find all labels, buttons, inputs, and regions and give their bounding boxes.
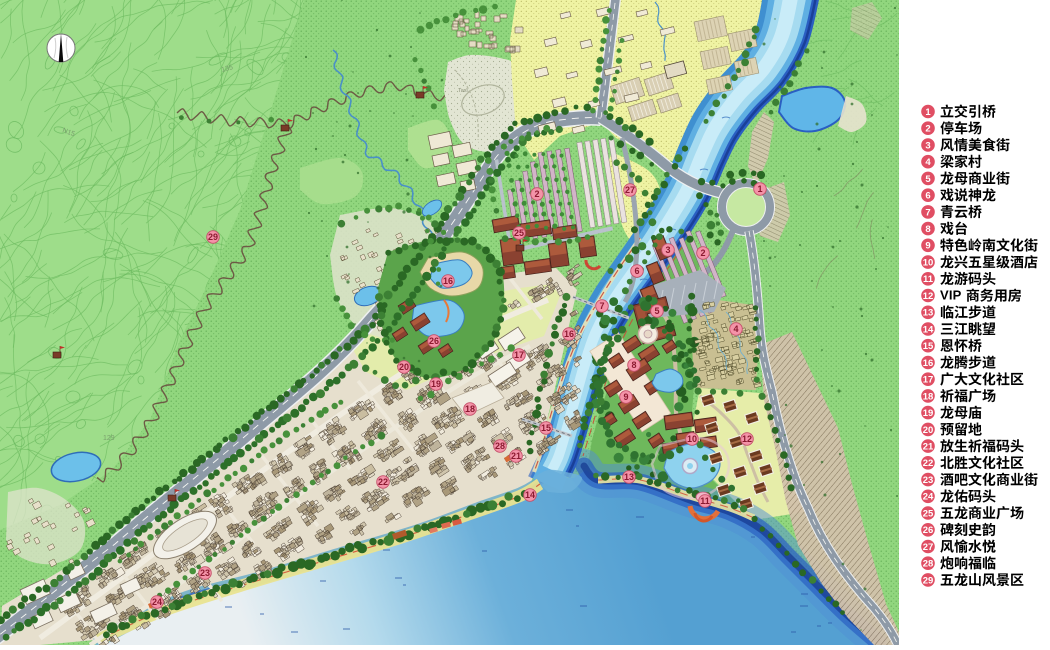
svg-text:28: 28 (923, 559, 934, 570)
svg-text:28: 28 (495, 441, 505, 451)
svg-text:23: 23 (923, 475, 934, 486)
svg-text:20: 20 (923, 425, 934, 436)
svg-text:2: 2 (534, 189, 539, 199)
svg-text:25: 25 (923, 508, 934, 519)
svg-text:18: 18 (923, 391, 934, 402)
svg-text:4: 4 (733, 324, 738, 334)
svg-text:15: 15 (541, 423, 551, 433)
svg-text:18: 18 (465, 404, 475, 414)
svg-text:6: 6 (634, 266, 639, 276)
svg-text:16: 16 (443, 276, 453, 286)
svg-text:9: 9 (623, 392, 628, 402)
svg-text:21: 21 (511, 451, 521, 461)
svg-text:VIP: VIP (940, 288, 962, 303)
svg-text:5: 5 (654, 306, 659, 316)
svg-text:6: 6 (925, 191, 930, 202)
svg-text:20: 20 (399, 362, 409, 372)
svg-text:129: 129 (103, 435, 115, 442)
svg-text:11: 11 (700, 496, 710, 506)
svg-text:29: 29 (208, 232, 218, 242)
svg-text:11: 11 (923, 274, 934, 285)
svg-text:7: 7 (925, 207, 930, 218)
svg-text:10: 10 (687, 434, 697, 444)
svg-text:16: 16 (564, 329, 574, 339)
svg-text:26: 26 (923, 525, 934, 536)
svg-text:17: 17 (923, 375, 934, 386)
svg-text:8: 8 (631, 360, 636, 370)
svg-text:3: 3 (925, 140, 930, 151)
svg-text:2: 2 (925, 124, 930, 135)
svg-text:16: 16 (923, 358, 934, 369)
svg-text:14: 14 (525, 490, 535, 500)
svg-text:5: 5 (925, 174, 931, 185)
svg-text:12: 12 (923, 291, 934, 302)
svg-text:10: 10 (923, 258, 934, 269)
svg-text:1: 1 (925, 107, 931, 118)
svg-text:24: 24 (152, 597, 162, 607)
svg-text:22: 22 (923, 458, 934, 469)
svg-text:12: 12 (742, 434, 752, 444)
svg-text:27: 27 (625, 185, 635, 195)
svg-text:19: 19 (431, 379, 441, 389)
svg-text:14: 14 (923, 324, 934, 335)
svg-text:19: 19 (923, 408, 934, 419)
svg-text:23: 23 (200, 568, 210, 578)
svg-text:4: 4 (925, 157, 931, 168)
svg-text:13: 13 (624, 472, 634, 482)
svg-text:9: 9 (925, 241, 930, 252)
svg-text:22: 22 (378, 477, 388, 487)
svg-text:25: 25 (514, 228, 524, 238)
svg-text:7: 7 (599, 301, 604, 311)
svg-text:17: 17 (514, 350, 524, 360)
svg-text:15: 15 (923, 341, 934, 352)
svg-text:Taxi.: Taxi. (458, 88, 470, 94)
svg-text:8: 8 (925, 224, 930, 235)
svg-text:3: 3 (665, 245, 670, 255)
svg-text:26: 26 (429, 336, 439, 346)
svg-text:2: 2 (700, 248, 705, 258)
svg-text:21: 21 (923, 442, 934, 453)
svg-text:27: 27 (923, 542, 934, 553)
svg-text:1: 1 (757, 184, 762, 194)
svg-text:13: 13 (923, 308, 934, 319)
svg-text:24: 24 (923, 492, 934, 503)
svg-text:29: 29 (923, 575, 934, 586)
